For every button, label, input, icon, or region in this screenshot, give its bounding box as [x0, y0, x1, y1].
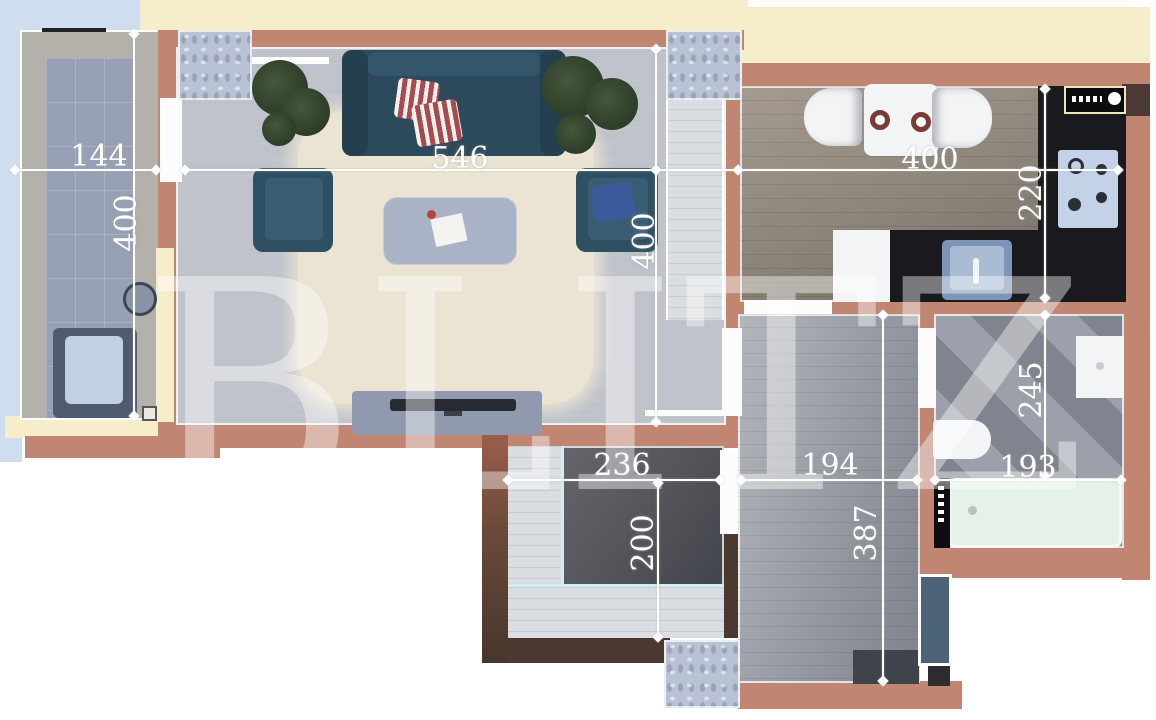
closet-wardrobe-bottom — [508, 584, 724, 638]
sofa-back-cushions — [368, 52, 540, 76]
burner-1 — [1068, 158, 1084, 174]
lounge-chair-cushion — [65, 336, 123, 404]
hallway-floor — [738, 314, 920, 683]
dim-label-living-width: 546 — [428, 143, 492, 175]
dim-label-bath-width: 193 — [996, 452, 1060, 484]
floor-plan-canvas: 144 400 546 400 400 220 245 193 236 194 … — [0, 0, 1156, 720]
tv-stand — [444, 411, 462, 416]
balcony-floor-drain — [142, 406, 157, 421]
entrance-door — [918, 574, 952, 666]
wall-outer-right — [1122, 63, 1150, 580]
dim-line-hall-depth — [882, 314, 884, 683]
burner-3 — [1068, 198, 1081, 211]
cooktop — [1058, 150, 1118, 228]
dining-chair-left — [804, 88, 862, 146]
door-opening-hall-kitchen — [744, 300, 832, 314]
wall-kitchen-top — [742, 63, 1150, 88]
kitchen-cabinet-white — [833, 230, 890, 302]
bathtub-drain — [968, 506, 977, 515]
exterior-dark-box — [1122, 84, 1150, 116]
burner-4 — [1096, 192, 1107, 203]
shaft-divider-strip — [666, 98, 724, 320]
exterior-strip-left — [156, 248, 174, 422]
tv — [390, 399, 516, 411]
plant-left-3 — [262, 112, 296, 146]
dim-label-hall-depth: 387 — [851, 501, 883, 565]
door-opening-hall-closet — [720, 450, 738, 534]
dim-label-balcony-depth: 400 — [111, 191, 143, 255]
closet-wardrobe-left — [508, 446, 564, 586]
door-opening-hall-bath — [918, 328, 936, 408]
pillar-top-right — [666, 30, 742, 100]
exterior-band-top — [140, 0, 748, 33]
wall-closet-left — [482, 421, 508, 663]
washing-machine-door — [1096, 362, 1104, 370]
dim-label-closet-width: 236 — [590, 450, 654, 482]
door-leaf-living — [645, 410, 725, 416]
toilet — [933, 420, 991, 459]
coffee-table-decor — [427, 210, 436, 219]
dim-label-bath-depth: 245 — [1016, 358, 1048, 422]
entrance-threshold — [928, 666, 950, 686]
pillar-top-left — [178, 30, 252, 100]
door-opening-living-hall — [722, 328, 742, 416]
plant-right-3 — [556, 114, 596, 154]
balcony-railing-left — [0, 18, 22, 462]
sofa-armrest-left — [342, 50, 368, 156]
balcony-railing-detail — [42, 28, 106, 32]
balcony-side-table — [123, 282, 157, 316]
dim-label-balcony-width: 144 — [67, 141, 131, 173]
exterior-band-top-right — [742, 7, 1150, 65]
armchair-left-seat — [265, 178, 323, 240]
oven-dial — [1108, 92, 1121, 105]
wall-bath-bottom — [918, 546, 1150, 578]
dim-label-living-depth: 400 — [629, 209, 661, 273]
dim-label-kitchen-width: 400 — [898, 144, 962, 176]
shower-panel-controls — [938, 486, 944, 526]
dim-label-closet-depth: 200 — [628, 511, 660, 575]
dim-label-hall-width: 194 — [798, 450, 862, 482]
pillar-bottom — [664, 640, 740, 708]
wall-closet-bottom — [506, 636, 670, 663]
cup-2 — [911, 112, 931, 132]
cup-1 — [870, 110, 890, 130]
kitchen-faucet — [973, 258, 979, 284]
dim-label-kitchen-depth: 220 — [1016, 161, 1048, 225]
dining-chair-right — [932, 88, 992, 148]
plant-right-2 — [586, 78, 638, 130]
oven-knobs — [1072, 96, 1102, 102]
